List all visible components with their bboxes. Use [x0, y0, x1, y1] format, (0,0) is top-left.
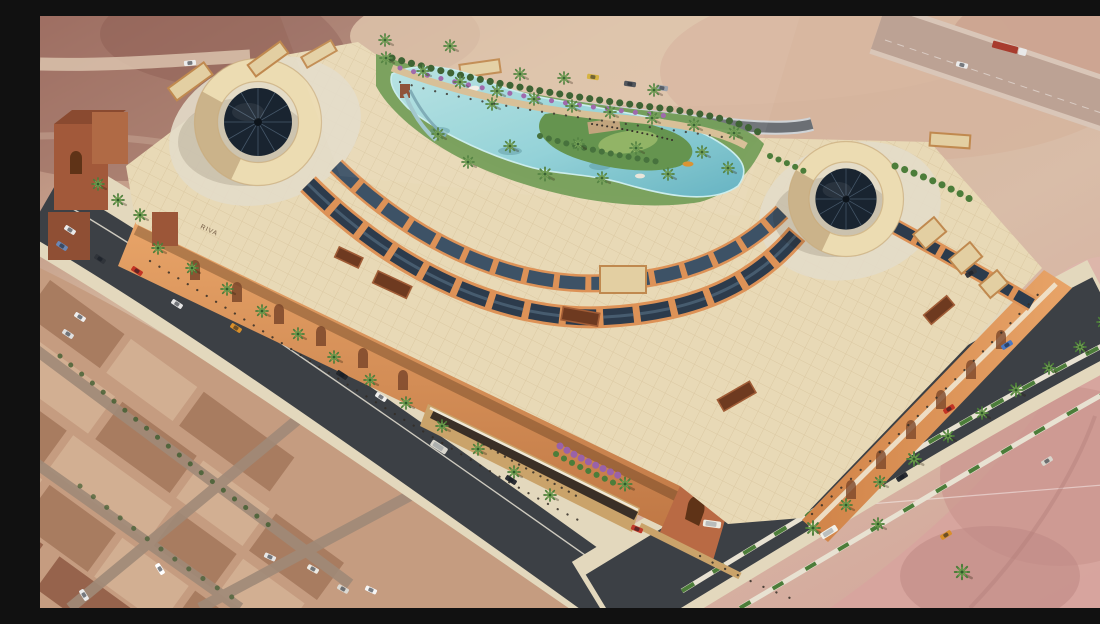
scene-canvas: RIVA: [40, 16, 1100, 608]
aerial-rendering: RIVA: [40, 16, 1100, 608]
